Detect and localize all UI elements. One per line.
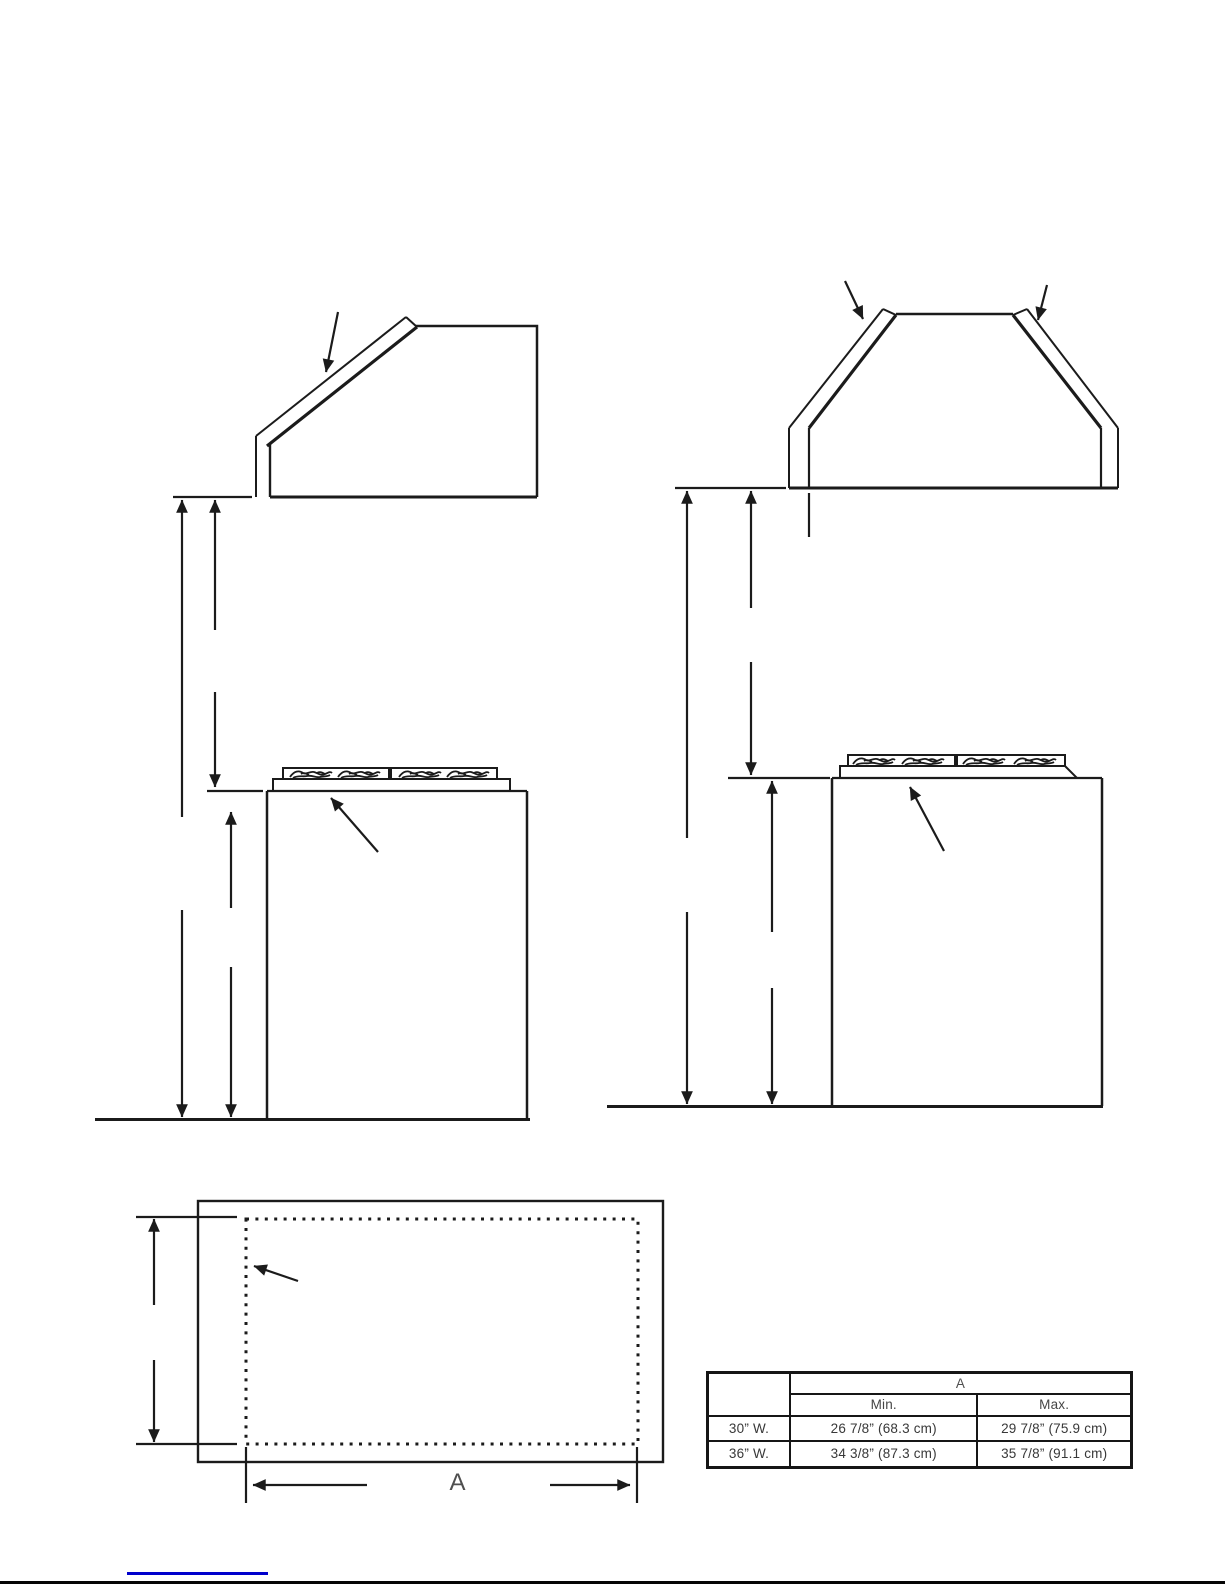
dimension-lines-plan-view bbox=[136, 1217, 637, 1503]
table-cell-30w-label: 30” W. bbox=[708, 1416, 791, 1441]
countertop-plan-view bbox=[198, 1201, 663, 1462]
table-cell-30w-min: 26 7/8” (68.3 cm) bbox=[790, 1416, 977, 1441]
table-corner-cell bbox=[708, 1373, 791, 1416]
table-header-a: A bbox=[790, 1373, 1131, 1394]
table-cell-36w-min: 34 3/8” (87.3 cm) bbox=[790, 1441, 977, 1468]
footer-link-underline[interactable] bbox=[127, 1572, 268, 1575]
table-row-group-header: A bbox=[708, 1373, 1132, 1394]
cutout-dotted-outline bbox=[246, 1219, 638, 1444]
cutout-pointer-arrow bbox=[254, 1266, 298, 1281]
table-header-max: Max. bbox=[977, 1394, 1131, 1416]
hood-panel-pointer-arrow-side bbox=[326, 312, 338, 372]
cooktop-front-view bbox=[840, 755, 1077, 778]
dimension-lines-side-view bbox=[173, 497, 263, 1117]
cooktop-pointer-arrow-side bbox=[331, 798, 378, 852]
table-row-30w: 30” W. 26 7/8” (68.3 cm) 29 7/8” (75.9 c… bbox=[708, 1416, 1132, 1441]
cooktop-side-view bbox=[273, 768, 510, 791]
table-cell-30w-max: 29 7/8” (75.9 cm) bbox=[977, 1416, 1131, 1441]
dimension-lines-front-view bbox=[675, 488, 830, 1104]
hood-front-view bbox=[789, 309, 1118, 537]
hood-side-view bbox=[256, 317, 537, 497]
table-cell-36w-max: 35 7/8” (91.1 cm) bbox=[977, 1441, 1131, 1468]
diagram-line-art bbox=[0, 0, 1225, 1585]
page-bottom-border bbox=[0, 1581, 1225, 1584]
cooktop-pointer-arrow-front bbox=[910, 787, 944, 851]
cabinet-front-view bbox=[832, 778, 1102, 1106]
table-cell-36w-label: 36” W. bbox=[708, 1441, 791, 1468]
manual-page: A A Min. Max. 30” W. 26 7/8” (68.3 cm) 2… bbox=[0, 0, 1225, 1585]
table-header-min: Min. bbox=[790, 1394, 977, 1416]
table-row-36w: 36” W. 34 3/8” (87.3 cm) 35 7/8” (91.1 c… bbox=[708, 1441, 1132, 1468]
cabinet-side-view bbox=[267, 791, 527, 1119]
plan-width-label: A bbox=[438, 1469, 478, 1497]
dimension-table: A Min. Max. 30” W. 26 7/8” (68.3 cm) 29 … bbox=[706, 1371, 1133, 1469]
